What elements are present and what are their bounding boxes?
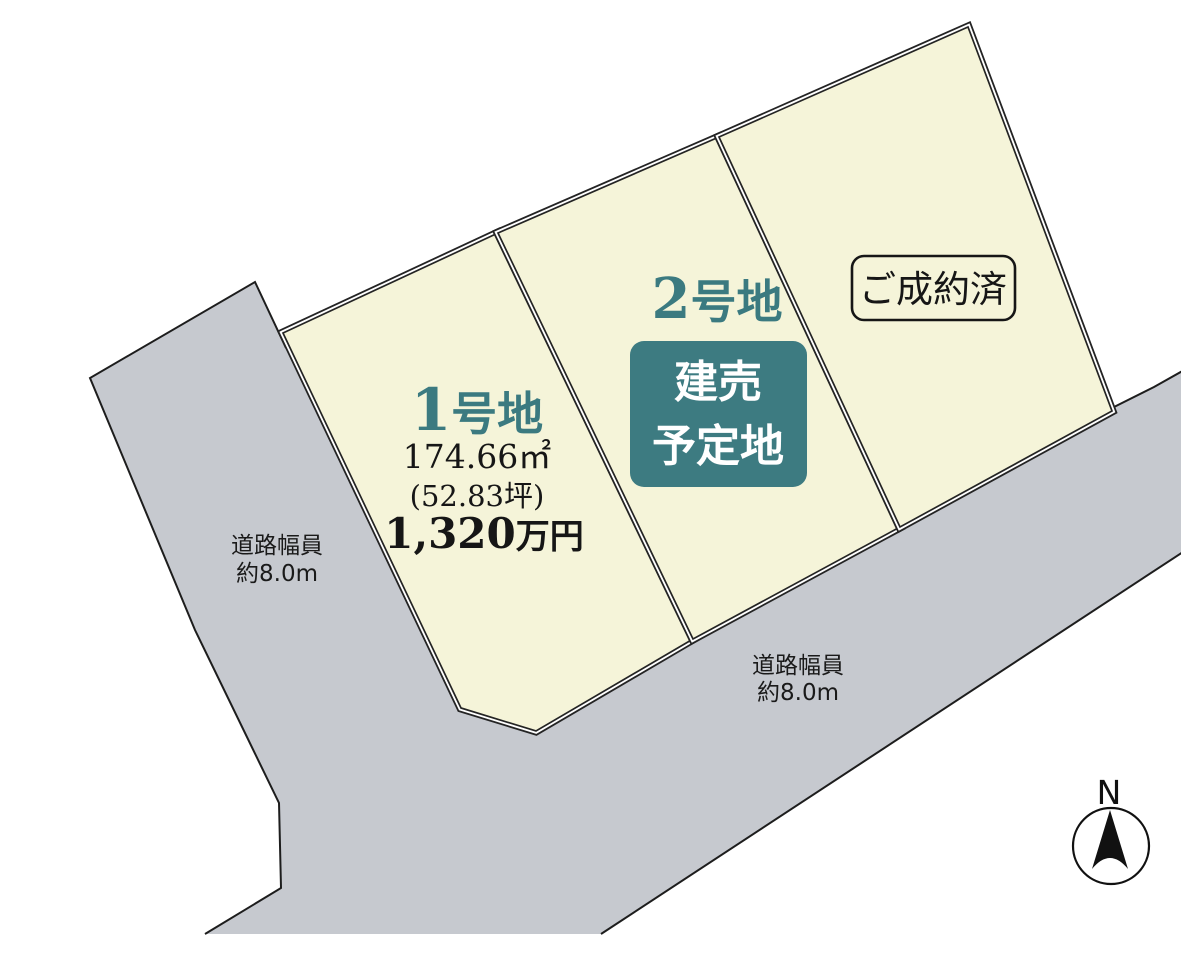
lot-2-suffix: 号地 [690,275,782,329]
road-width-bottom-line2: 約8.0m [757,680,839,706]
lot-1-suffix: 号地 [451,387,543,441]
lot-1-price-unit: 万円 [516,517,584,557]
lot-1-title: 1号地 [411,376,543,444]
lot-1-price: 1,320万円 [384,509,584,558]
lot-2-number: 2 [652,266,691,332]
road-width-label-bottom: 道路幅員 約8.0m [752,653,844,706]
lot-1-area: 174.66㎡ [403,437,551,476]
lot-2-title: 2号地 [652,266,783,332]
lot-layout-diagram: 1号地 174.66㎡ (52.83坪) 1,320万円 2号地 建売 予定地 … [0,0,1181,960]
lot-2-info: 2号地 建売 予定地 [630,266,807,487]
lot-1-area-tsubo: (52.83坪) [410,479,545,513]
road-width-left-line2: 約8.0m [236,561,318,587]
road-width-left-line1: 道路幅員 [231,533,323,559]
lot-2-status-line2: 予定地 [652,421,784,472]
lot-1-number: 1 [411,376,451,444]
lot-1-price-value: 1,320 [384,509,516,558]
lot-2-status-line1: 建売 [674,357,762,408]
road-width-bottom-line1: 道路幅員 [752,653,844,679]
compass-north-label: N [1097,773,1122,812]
lot-3-sold-label: ご成約済 [859,268,1007,311]
